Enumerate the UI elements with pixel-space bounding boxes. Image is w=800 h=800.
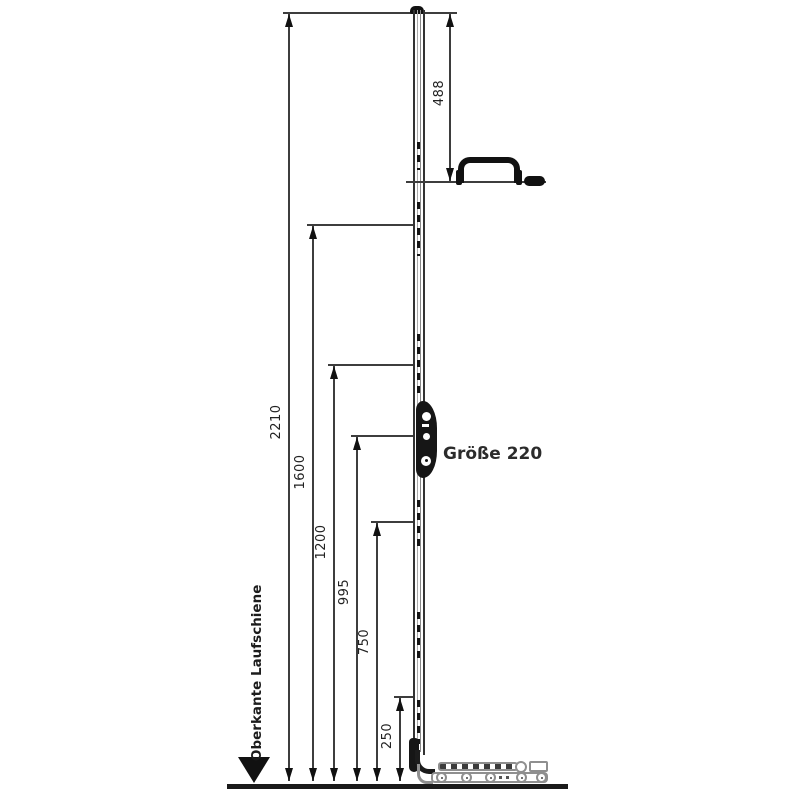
carriage-wheel: [461, 772, 472, 783]
drive-rod-dashes: [417, 612, 420, 658]
rod-left-edge: [413, 10, 415, 752]
extension-tick: [328, 364, 413, 366]
carriage-upper-bar: [438, 762, 518, 771]
gear-detail-circle: [423, 433, 430, 440]
dimension-value: 250: [380, 704, 396, 768]
dimension-value: 488: [432, 61, 448, 125]
dimension-value: 750: [357, 610, 373, 674]
arrow-down-icon: [309, 768, 317, 781]
drive-rod-dashes: [417, 142, 420, 170]
dimension-value: 1600: [293, 440, 309, 504]
arrow-up-icon: [309, 226, 317, 239]
dimension-line: [449, 14, 451, 181]
dimension-value: 2210: [269, 390, 285, 454]
arrow-down-icon: [373, 768, 381, 781]
arrow-up-icon: [285, 14, 293, 27]
technical-drawing-canvas: Oberkante Laufschiene Größe 220: [0, 0, 800, 800]
carriage-end-block: [529, 761, 548, 772]
arrow-up-icon: [446, 14, 454, 27]
dimension-line: [288, 14, 290, 781]
baseline: [227, 784, 568, 789]
arrow-up-icon: [373, 523, 381, 536]
part-size-label: Größe 220: [443, 444, 542, 464]
rod-inner-line-2: [420, 10, 421, 752]
arrow-down-icon: [396, 768, 404, 781]
handle-grip: [524, 176, 545, 186]
arrow-up-icon: [353, 437, 361, 450]
baseline-label: Oberkante Laufschiene: [248, 601, 266, 761]
arrow-down-icon: [353, 768, 361, 781]
dimension-line: [312, 226, 314, 781]
dimension-line: [356, 437, 358, 781]
drive-rod-dashes: [417, 700, 420, 744]
drive-rod-dashes: [417, 202, 420, 256]
drive-rod-dashes: [417, 334, 420, 396]
rod-right-edge: [423, 10, 425, 755]
carriage-wheel: [516, 772, 527, 783]
arrow-up-icon: [396, 698, 404, 711]
carriage-wheel: [536, 772, 547, 783]
arrow-up-icon: [330, 366, 338, 379]
carriage-wheel: [436, 772, 447, 783]
drive-rod-dashes: [417, 500, 420, 552]
arrow-down-icon: [330, 768, 338, 781]
handle-bow: [458, 157, 520, 183]
arrow-down-icon: [446, 168, 454, 181]
arrow-down-icon: [285, 768, 293, 781]
carriage-rivet-dots: [499, 776, 513, 779]
dimension-value: 1200: [314, 510, 330, 574]
handle-mount-right: [516, 170, 522, 185]
top-extension-line: [283, 12, 457, 14]
carriage-wheel: [485, 772, 496, 783]
dimension-value: 995: [337, 560, 353, 624]
extension-tick: [307, 224, 413, 226]
gear-detail-dot: [425, 459, 428, 462]
gear-detail-circle: [422, 412, 431, 421]
gear-detail-notch: [422, 424, 429, 427]
handle-mount-left: [456, 170, 462, 185]
dimension-line: [376, 523, 378, 781]
dimension-line: [333, 366, 335, 781]
